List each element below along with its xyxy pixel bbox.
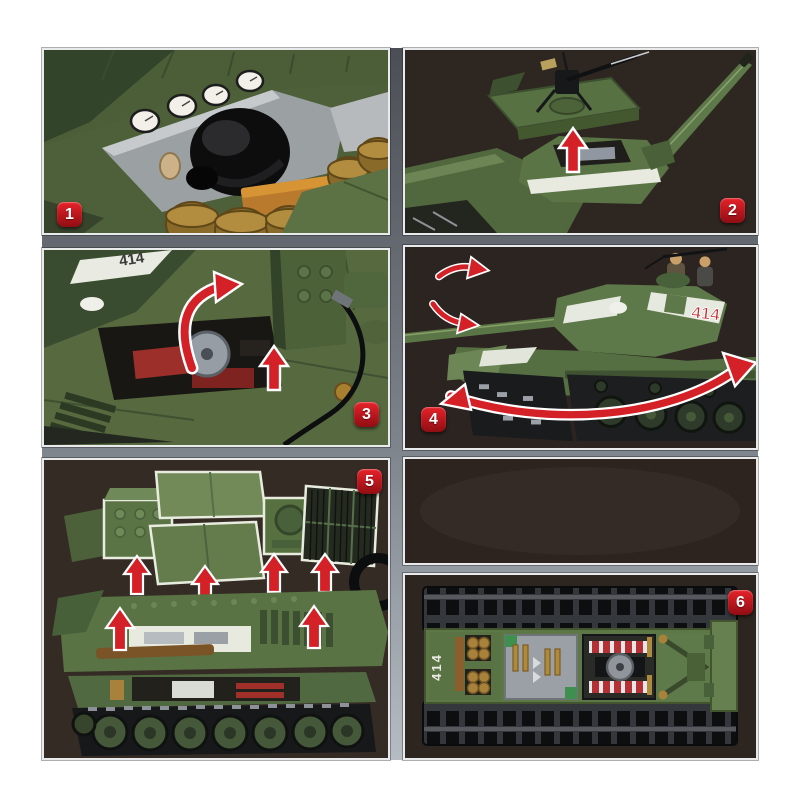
turret-assembly-photo <box>405 50 756 233</box>
step-badge: 2 <box>720 198 745 223</box>
panel-6-chassis-top-view: 414 <box>403 573 758 760</box>
step-badge: 6 <box>728 590 753 615</box>
step-badge: 4 <box>421 407 446 432</box>
step-badge: 3 <box>354 402 379 427</box>
step-badge: 1 <box>57 202 82 227</box>
engine-bay-top <box>583 635 655 699</box>
bow-stowage: 414 <box>429 632 501 700</box>
panel-dark-spacer <box>403 457 758 565</box>
hull-number-marking: 414 <box>429 653 444 681</box>
panel-1-interior-stowage: 1 <box>42 48 390 235</box>
turret-number-marking: 414 <box>691 303 722 325</box>
chassis-top-photo: 414 <box>405 575 756 758</box>
lower-hull <box>68 672 376 708</box>
exploded-view-photo <box>44 460 388 758</box>
engine-bay-photo: 414 <box>44 250 388 445</box>
track-bottom <box>423 701 737 745</box>
panel-2-turret-assembly: 2 <box>403 48 758 235</box>
interior-stowage-photo <box>44 50 388 233</box>
detached-roof-panel-rear <box>156 472 266 518</box>
bear-emblem <box>80 297 104 311</box>
bear-emblem <box>609 302 627 314</box>
panel-4-turret-rotation: 414 <box>403 245 758 450</box>
detached-grille-panel <box>302 486 378 566</box>
ammo-tray <box>505 635 577 699</box>
rear-plate <box>659 621 738 711</box>
panel-3-engine-bay: 414 <box>42 248 390 447</box>
step-badge: 5 <box>357 469 382 494</box>
turret-rotation-photo: 414 <box>405 247 756 448</box>
product-photo-collage: 1 <box>42 48 758 760</box>
tracks <box>72 703 376 756</box>
panel-5-exploded-view: 5 <box>42 458 390 760</box>
dark-photo <box>405 459 756 563</box>
track-top <box>423 587 737 631</box>
upper-hull <box>52 590 388 672</box>
